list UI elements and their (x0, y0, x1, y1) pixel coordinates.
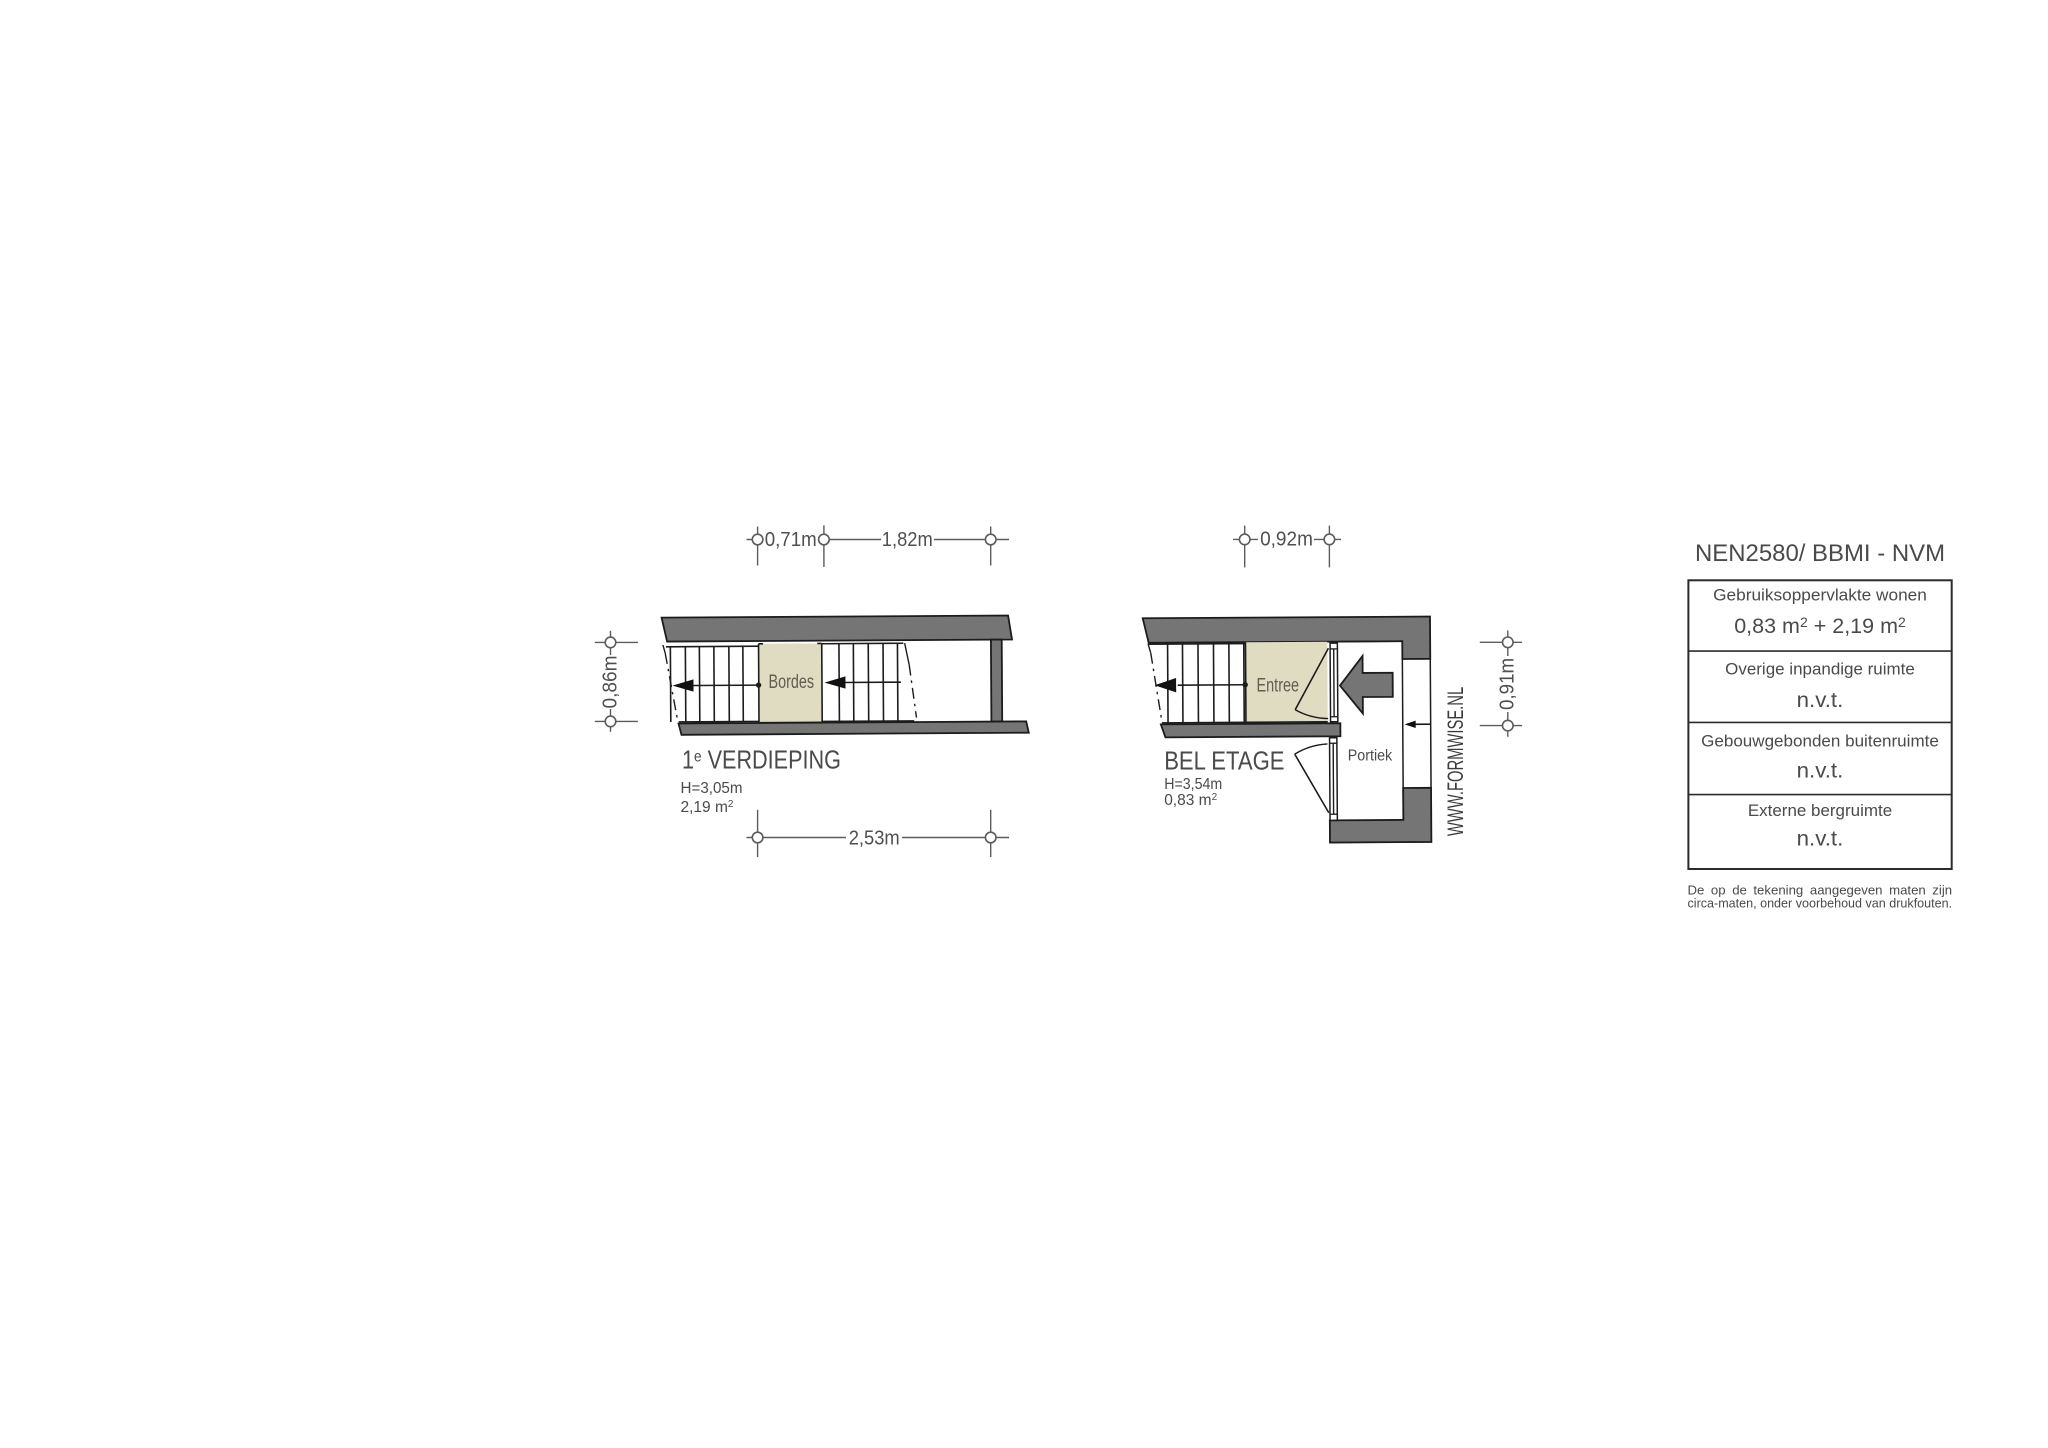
svg-text:Entree: Entree (1257, 675, 1300, 697)
svg-text:0,71m: 0,71m (765, 529, 817, 551)
svg-text:n.v.t.: n.v.t. (1797, 688, 1844, 712)
svg-text:H=3,05m: H=3,05m (681, 780, 743, 797)
svg-text:H=3,54m: H=3,54m (1164, 776, 1222, 793)
svg-text:n.v.t.: n.v.t. (1797, 827, 1844, 851)
svg-text:0,92m: 0,92m (1260, 529, 1313, 551)
svg-text:n.v.t.: n.v.t. (1797, 759, 1844, 783)
svg-text:0,91m: 0,91m (1497, 658, 1519, 710)
svg-text:Gebouwgebonden buitenruimte: Gebouwgebonden buitenruimte (1701, 732, 1939, 751)
svg-text:NEN2580/ BBMI - NVM: NEN2580/ BBMI - NVM (1695, 540, 1945, 567)
svg-text:Gebruiksoppervlakte wonen: Gebruiksoppervlakte wonen (1713, 586, 1927, 605)
svg-text:BEL ETAGE: BEL ETAGE (1164, 747, 1284, 775)
svg-text:1e VERDIEPING: 1e VERDIEPING (682, 747, 841, 775)
svg-text:circa-maten, onder voorbehoud: circa-maten, onder voorbehoud van drukfo… (1688, 896, 1953, 911)
svg-text:WWW.FORMWISE.NL: WWW.FORMWISE.NL (1443, 687, 1468, 836)
svg-text:2,19 m2: 2,19 m2 (681, 799, 734, 816)
svg-text:Overige inpandige ruimte: Overige inpandige ruimte (1725, 659, 1915, 678)
svg-text:2,53m: 2,53m (849, 828, 900, 850)
svg-text:0,83 m2: 0,83 m2 (1164, 792, 1217, 809)
svg-text:Portiek: Portiek (1348, 748, 1393, 765)
svg-text:Externe bergruimte: Externe bergruimte (1748, 801, 1892, 820)
svg-text:0,86m: 0,86m (600, 656, 622, 709)
svg-text:1,82m: 1,82m (882, 529, 933, 551)
svg-text:Bordes: Bordes (769, 671, 815, 693)
svg-text:0,83 m2 + 2,19 m2: 0,83 m2 + 2,19 m2 (1734, 614, 1906, 638)
